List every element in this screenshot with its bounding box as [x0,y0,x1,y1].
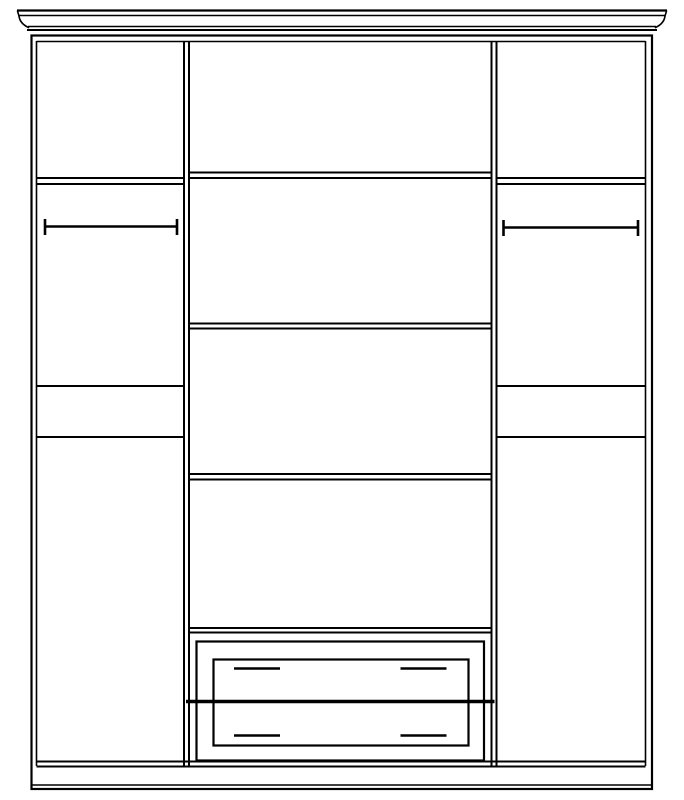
crown-left-ogee-profile [18,11,29,28]
carcass-outer-rect [32,36,653,790]
wardrobe-elevation-svg [0,0,684,800]
crown-right-ogee-profile [656,11,667,28]
wardrobe-drawing-canvas [0,0,684,800]
